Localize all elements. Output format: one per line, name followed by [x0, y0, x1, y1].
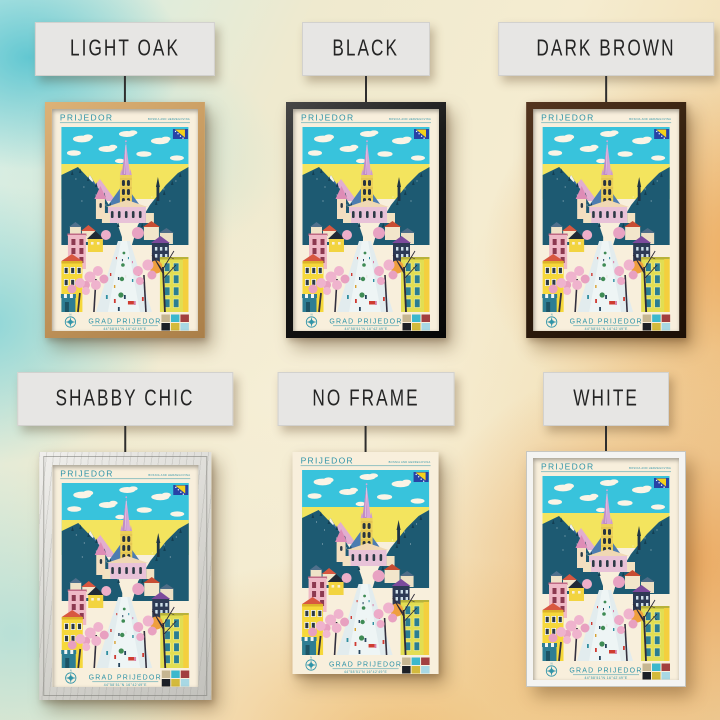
frame-option-label: WHITE — [573, 386, 639, 413]
frame-option-label: BLACK — [333, 36, 400, 63]
poster-artwork: PRIJEDOR BOSNIA AND HERZEGOVINA — [52, 465, 198, 687]
svg-text:N: N — [311, 312, 313, 316]
poster-coordinates: 44°58'51"N 16°42'49"E — [103, 327, 146, 331]
frame-option-sign[interactable]: SHABBY CHIC — [17, 372, 233, 426]
hanging-wire — [124, 76, 126, 102]
poster-title: PRIJEDOR — [60, 113, 113, 123]
frame-option-sign[interactable]: DARK BROWN — [498, 22, 714, 76]
svg-text:N: N — [311, 655, 313, 659]
frame-option-sign[interactable]: WHITE — [543, 372, 669, 426]
svg-text:N: N — [551, 312, 553, 316]
framed-poster[interactable]: PRIJEDOR BOSNIA AND HERZEGOVINA — [526, 102, 686, 338]
poster-city-label: GRAD PRIJEDOR — [569, 319, 642, 326]
poster-coordinates: 44°58'51"N 16°42'49"E — [584, 327, 627, 331]
poster-title: PRIJEDOR — [60, 469, 113, 479]
poster-coordinates: 44°58'51"N 16°42'49"E — [584, 676, 627, 680]
poster-artwork: PRIJEDOR BOSNIA AND HERZEGOVINA — [533, 458, 679, 680]
poster-artwork: PRIJEDOR BOSNIA AND HERZEGOVINA — [293, 109, 439, 331]
poster-city-label: GRAD PRIJEDOR — [88, 675, 161, 682]
poster-country-label: BOSNIA AND HERZEGOVINA — [389, 117, 431, 121]
artwork-scene — [302, 470, 430, 655]
product-variant-dark-brown: DARK BROWN PRIJEDOR BOSNIA AND HERZEGOVI… — [498, 22, 714, 338]
artwork-scene — [61, 483, 189, 668]
framed-poster[interactable]: PRIJEDOR BOSNIA AND HERZEGOVINA — [293, 452, 439, 674]
poster-country-label: BOSNIA AND HERZEGOVINA — [148, 473, 190, 477]
poster-city-label: GRAD PRIJEDOR — [329, 319, 402, 326]
bosnia-flag-icon — [414, 472, 429, 482]
hanging-wire — [605, 76, 607, 102]
bosnia-flag-icon — [173, 129, 188, 139]
poster-title: PRIJEDOR — [301, 456, 354, 466]
poster-title: PRIJEDOR — [541, 462, 594, 472]
frame-option-label: DARK BROWN — [536, 36, 675, 63]
hanging-wire — [605, 426, 607, 452]
frame-option-label: SHABBY CHIC — [56, 386, 195, 413]
product-variant-black: BLACK PRIJEDOR BOSNIA AND HERZEGOVINA — [286, 22, 446, 338]
poster-country-label: BOSNIA AND HERZEGOVINA — [148, 117, 190, 121]
framed-poster[interactable]: PRIJEDOR BOSNIA AND HERZEGOVINA — [39, 452, 211, 700]
hanging-wire — [365, 426, 367, 452]
svg-text:N: N — [70, 668, 72, 672]
artwork-scene — [542, 476, 670, 661]
artwork-scene — [302, 127, 430, 312]
poster-city-label: GRAD PRIJEDOR — [569, 668, 642, 675]
poster-title: PRIJEDOR — [301, 113, 354, 123]
poster-coordinates: 44°58'51"N 16°42'49"E — [103, 683, 146, 687]
framed-poster[interactable]: PRIJEDOR BOSNIA AND HERZEGOVINA — [527, 452, 685, 686]
frame-option-label: NO FRAME — [312, 386, 419, 413]
poster-coordinates: 44°58'51"N 16°42'49"E — [344, 670, 387, 674]
poster-country-label: BOSNIA AND HERZEGOVINA — [629, 117, 671, 121]
frame-option-sign[interactable]: NO FRAME — [278, 372, 455, 426]
bosnia-flag-icon — [173, 485, 188, 495]
frame-option-label: LIGHT OAK — [70, 36, 180, 63]
bosnia-flag-icon — [414, 129, 429, 139]
product-variant-light-oak: LIGHT OAK PRIJEDOR BOSNIA AND HERZEGOVIN… — [35, 22, 215, 338]
frame-option-sign[interactable]: LIGHT OAK — [35, 22, 215, 76]
bosnia-flag-icon — [654, 129, 669, 139]
bosnia-flag-icon — [654, 478, 669, 488]
poster-title: PRIJEDOR — [541, 113, 594, 123]
poster-country-label: BOSNIA AND HERZEGOVINA — [389, 460, 431, 464]
poster-artwork: PRIJEDOR BOSNIA AND HERZEGOVINA — [533, 109, 679, 331]
artwork-scene — [542, 127, 670, 312]
svg-text:N: N — [70, 312, 72, 316]
product-variant-no-frame: NO FRAME PRIJEDOR BOSNIA AND HERZEGOVINA — [278, 372, 455, 674]
framed-poster[interactable]: PRIJEDOR BOSNIA AND HERZEGOVINA — [45, 102, 205, 338]
poster-artwork: PRIJEDOR BOSNIA AND HERZEGOVINA — [52, 109, 198, 331]
artwork-scene — [61, 127, 189, 312]
poster-country-label: BOSNIA AND HERZEGOVINA — [629, 466, 671, 470]
poster-city-label: GRAD PRIJEDOR — [88, 319, 161, 326]
product-wall: LIGHT OAK PRIJEDOR BOSNIA AND HERZEGOVIN… — [0, 0, 720, 720]
hanging-wire — [365, 76, 367, 102]
poster-city-label: GRAD PRIJEDOR — [329, 662, 402, 669]
framed-poster[interactable]: PRIJEDOR BOSNIA AND HERZEGOVINA — [286, 102, 446, 338]
product-variant-shabby-chic: SHABBY CHIC PRIJEDOR BOSNIA AND HERZEGOV… — [17, 372, 233, 700]
svg-text:N: N — [551, 661, 553, 665]
poster-artwork: PRIJEDOR BOSNIA AND HERZEGOVINA — [293, 452, 439, 674]
poster-coordinates: 44°58'51"N 16°42'49"E — [344, 327, 387, 331]
hanging-wire — [124, 426, 126, 452]
frame-option-sign[interactable]: BLACK — [302, 22, 429, 76]
product-variant-white: WHITE PRIJEDOR BOSNIA AND HERZEGOVINA — [527, 372, 685, 686]
